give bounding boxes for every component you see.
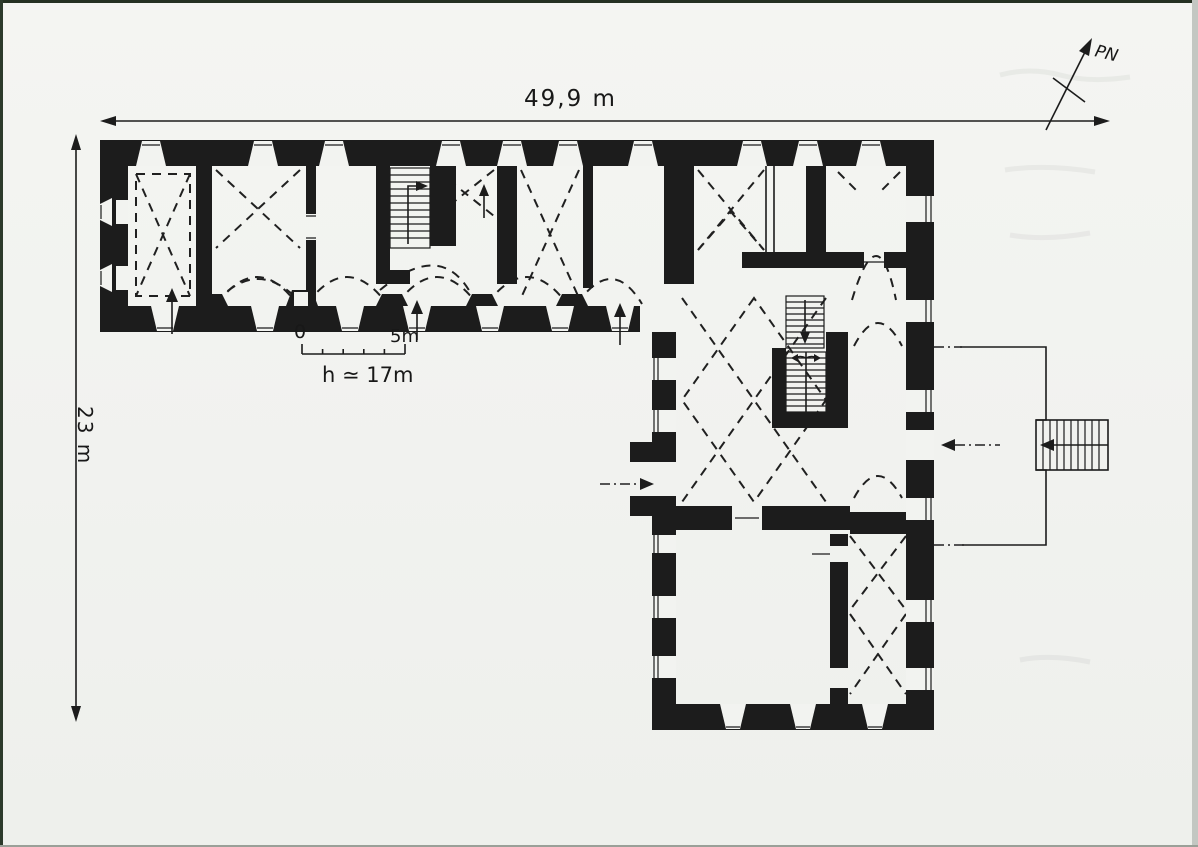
building-walls (100, 140, 934, 730)
north-label: PN (1093, 41, 1120, 66)
floor-plan-drawing: 49,9 m 23 m 0 5m h ≃ 17m PN (0, 0, 1198, 847)
height-dimension-label: 23 m (73, 406, 97, 465)
dimension-top: 49,9 m (100, 86, 1110, 126)
dimension-left: 23 m (71, 134, 97, 722)
height-note-label: h ≃ 17m (322, 363, 413, 387)
page-bleed-through (1000, 71, 1130, 662)
scale-five-label: 5m (390, 326, 419, 347)
internal-stair-west (390, 168, 430, 248)
scale-zero-label: 0 (294, 321, 306, 343)
external-stair (1036, 420, 1108, 470)
scanned-floor-plan-page: 49,9 m 23 m 0 5m h ≃ 17m PN (0, 0, 1198, 847)
width-dimension-label: 49,9 m (524, 86, 617, 112)
vault-lines (136, 170, 906, 694)
internal-stair-junction (786, 296, 826, 412)
north-arrow: PN (1046, 38, 1120, 130)
